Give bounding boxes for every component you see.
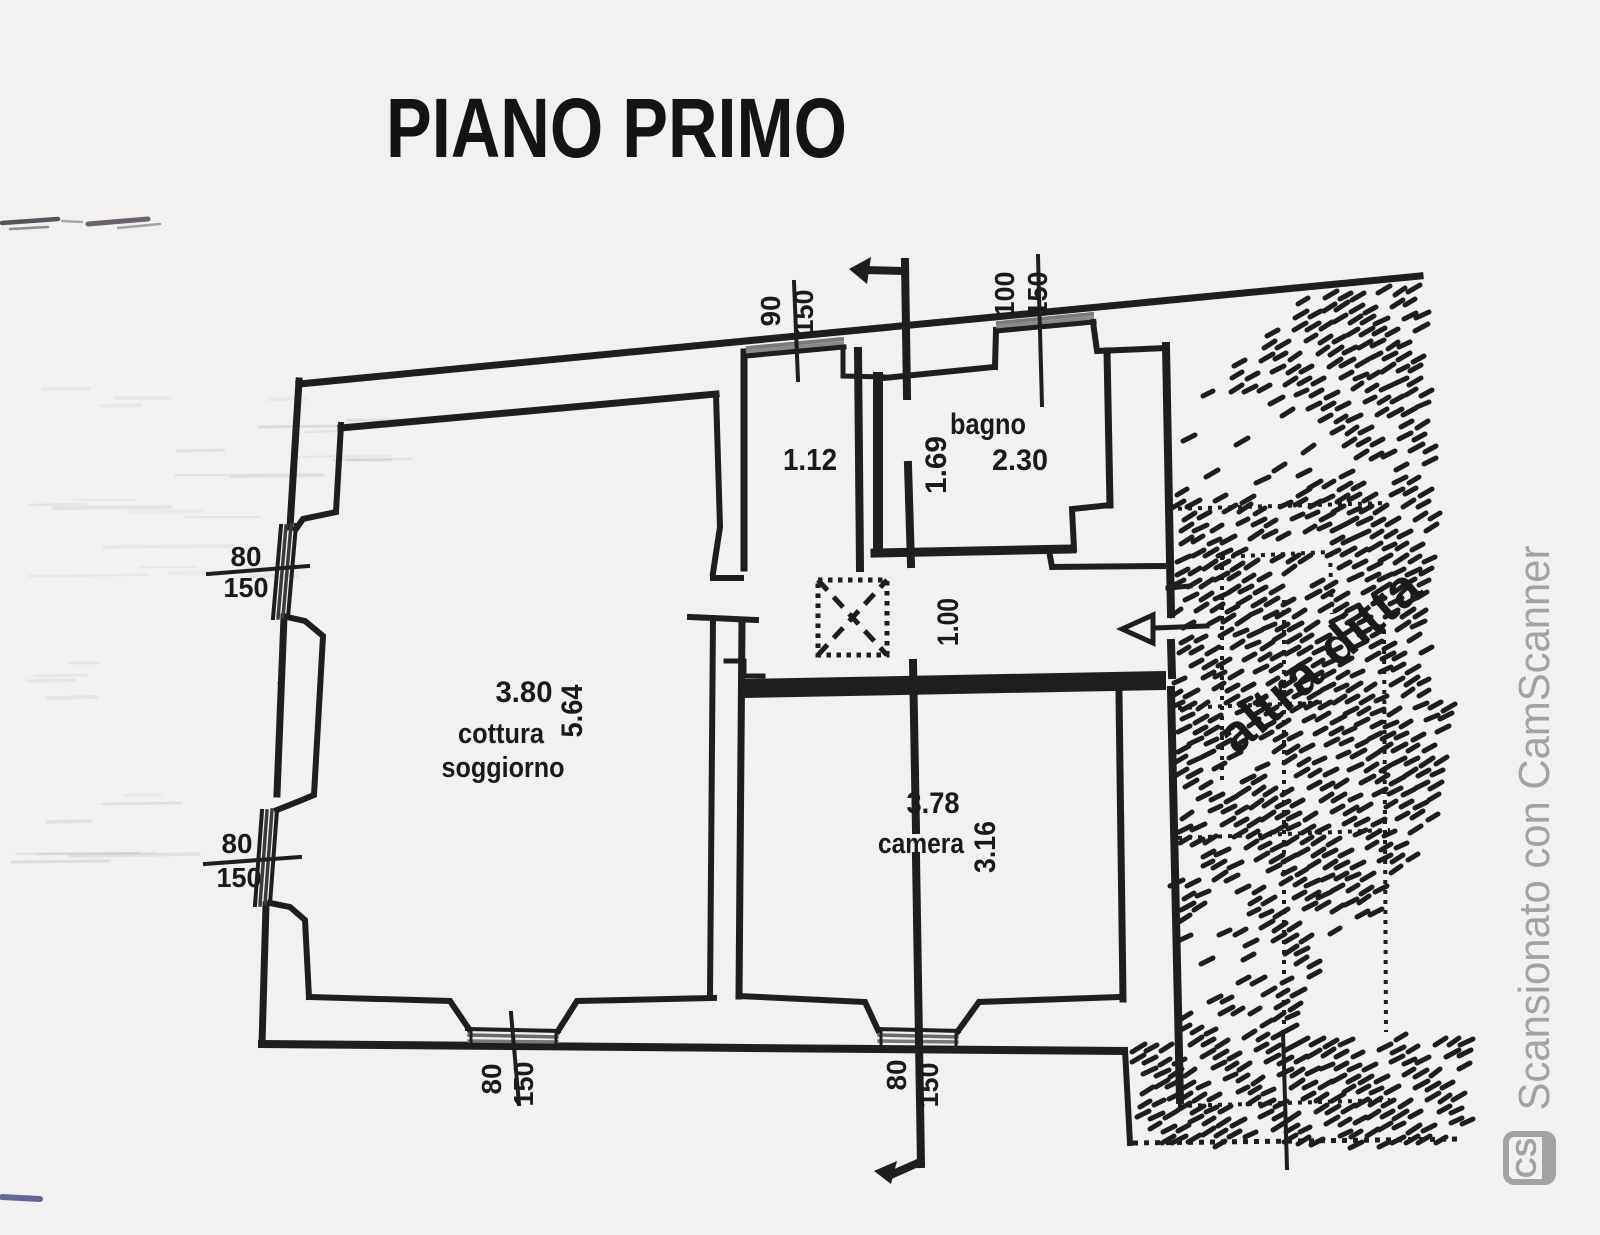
svg-text:150: 150	[224, 572, 269, 603]
svg-text:1.00: 1.00	[932, 598, 965, 646]
svg-text:5.64: 5.64	[556, 684, 589, 737]
svg-text:1.12: 1.12	[783, 442, 837, 477]
svg-text:80: 80	[881, 1060, 912, 1091]
svg-text:1.69: 1.69	[920, 436, 953, 494]
svg-text:80: 80	[231, 541, 262, 572]
svg-text:150: 150	[217, 862, 262, 893]
svg-text:150: 150	[788, 290, 819, 335]
svg-text:PIANO PRIMO: PIANO PRIMO	[386, 81, 847, 175]
svg-text:3.80: 3.80	[496, 676, 553, 709]
svg-text:Scansionato con CamScanner: Scansionato con CamScanner	[1510, 546, 1559, 1111]
svg-text:2.30: 2.30	[992, 444, 1048, 477]
svg-text:3.78: 3.78	[907, 787, 960, 820]
svg-text:bagno: bagno	[950, 408, 1026, 441]
svg-text:150: 150	[508, 1062, 539, 1107]
svg-text:soggiorno: soggiorno	[442, 752, 565, 784]
svg-text:150: 150	[1022, 272, 1053, 317]
svg-text:camera: camera	[878, 828, 965, 860]
svg-text:150: 150	[913, 1063, 944, 1108]
svg-text:3.16: 3.16	[969, 821, 1002, 873]
svg-text:80: 80	[476, 1064, 507, 1095]
svg-text:90: 90	[755, 296, 786, 327]
svg-text:CS: CS	[1511, 1138, 1543, 1178]
svg-text:cottura: cottura	[458, 718, 545, 750]
svg-text:100: 100	[989, 272, 1020, 317]
svg-text:80: 80	[222, 828, 253, 859]
